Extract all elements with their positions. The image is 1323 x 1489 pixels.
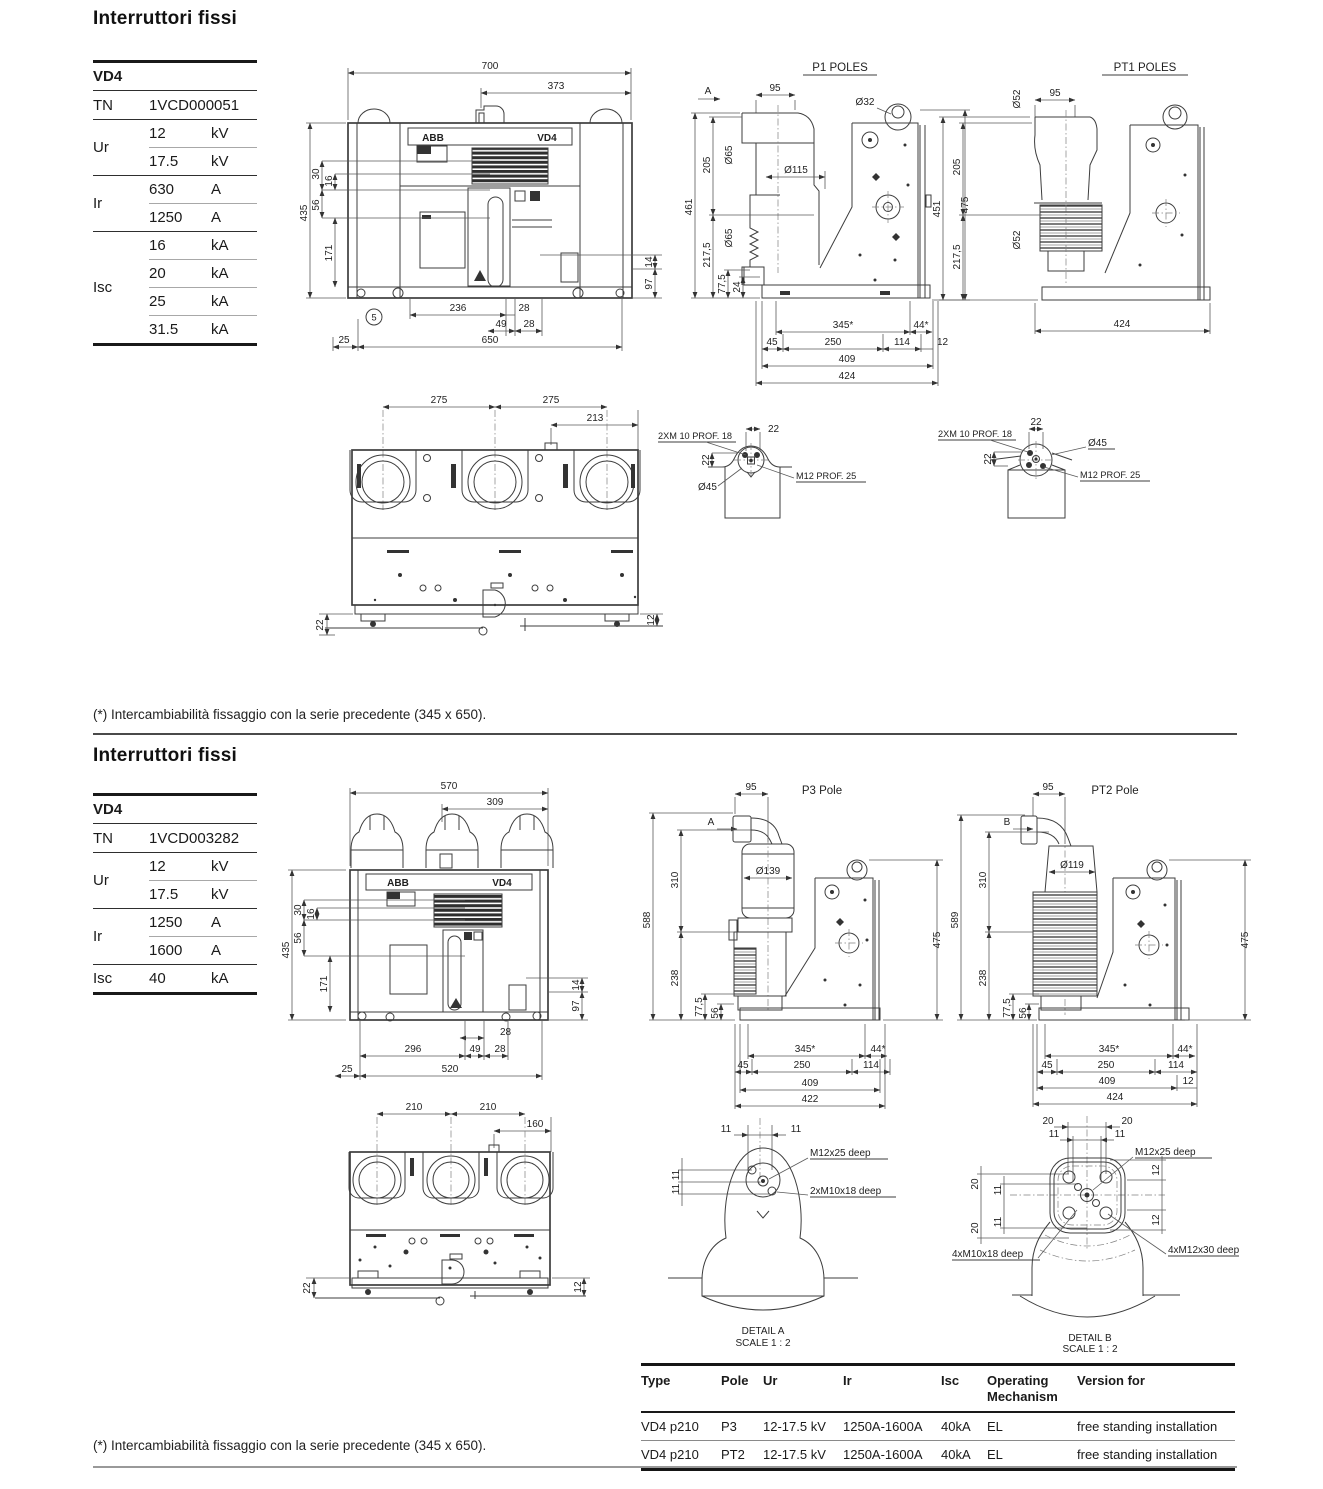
dim-label: 30: [293, 904, 304, 916]
dim-label: 345*: [1099, 1044, 1120, 1055]
dim-label: 77,5: [717, 274, 728, 294]
dim-label: Ø65: [724, 228, 735, 247]
dim-label: 217,5: [952, 244, 963, 269]
pole-dome: [426, 814, 478, 868]
table-header: Type: [641, 1366, 721, 1411]
pole-dome: [501, 814, 553, 868]
dim-label: 435: [299, 204, 310, 221]
dim-label: 95: [769, 83, 781, 94]
dim-label: 12: [646, 614, 657, 626]
dim-label: Ø45: [1088, 438, 1107, 449]
dim-label: 570: [441, 781, 458, 792]
dim-label: 424: [1107, 1092, 1124, 1103]
spec-unit: kV: [211, 852, 257, 880]
dim-label: 461: [684, 198, 695, 215]
spec-value: 1VCD000051: [149, 91, 257, 119]
table-cell: VD4 p210: [641, 1440, 721, 1468]
spec-unit: kV: [211, 147, 257, 175]
table-cell: 1250A-1600A: [843, 1411, 941, 1440]
dim-label: 11: [721, 1124, 732, 1135]
dim-label: 14: [571, 979, 582, 991]
dim-label: 11: [993, 1184, 1004, 1195]
dim-label: 44*: [913, 320, 928, 331]
dim-label: 250: [794, 1060, 811, 1071]
dim-label: Ø52: [1012, 230, 1023, 249]
spec-value: 12: [149, 119, 211, 147]
view-direction-label: A: [708, 817, 715, 828]
dim-label: 217,5: [702, 242, 713, 267]
spec-unit: A: [211, 175, 257, 203]
spec-value: 1600: [149, 936, 211, 964]
dim-label: 95: [1049, 88, 1061, 99]
brand-label: ABB: [422, 133, 444, 144]
dim-label: 44*: [1177, 1044, 1192, 1055]
dim-label: 451: [932, 200, 943, 217]
dim-label: 12: [1182, 1076, 1194, 1087]
view-direction-label: B: [1004, 817, 1011, 828]
table-cell: 12-17.5 kV: [763, 1440, 843, 1468]
thread-spec-label: 4xM12x30 deep: [1168, 1245, 1240, 1256]
dim-label: 30: [311, 168, 322, 180]
dim-label: 238: [670, 969, 681, 986]
table-header: Operating Mechanism: [987, 1366, 1077, 1411]
dim-label: Ø115: [784, 165, 808, 176]
spec-unit: kA: [211, 259, 257, 287]
bottom-view-drawing-1: 275 275 213 22 12: [305, 390, 670, 655]
spec-label: Isc: [93, 964, 149, 992]
dim-label: 12: [1151, 1214, 1162, 1226]
dim-label: 114: [894, 337, 910, 348]
pole-dome: [351, 814, 403, 868]
thread-spec-label: 2XM 10 PROF. 18: [658, 431, 732, 441]
footnote-2: (*) Intercambiabilità fissaggio con la s…: [93, 1438, 486, 1453]
dim-label: 345*: [833, 320, 854, 331]
table-cell: P3: [721, 1411, 763, 1440]
dim-label: 650: [482, 335, 499, 346]
dim-label: Ø65: [724, 145, 735, 164]
table-cell: free standing installation: [1077, 1411, 1235, 1440]
dim-label: 49: [469, 1044, 481, 1055]
spec-table-title: VD4: [93, 63, 257, 91]
dim-label: 310: [670, 871, 681, 888]
dim-label: 171: [324, 244, 335, 261]
dim-label: 409: [802, 1078, 819, 1089]
dim-label: 236: [450, 303, 467, 314]
dim-label: 435: [281, 941, 292, 958]
spec-value: 40: [149, 964, 211, 992]
p3-pole-drawing: P3 Pole 95 A Ø139 588 310 238 77,5 56 47…: [635, 780, 945, 1110]
dim-label: 409: [1099, 1076, 1116, 1087]
dim-label: 28: [518, 303, 530, 314]
dim-label: 296: [405, 1044, 422, 1055]
louver-grille: [434, 894, 502, 927]
pole-terminal-detail-right: 22 22 2XM 10 PROF. 18 Ø45 M12 PROF. 25: [930, 415, 1180, 525]
dim-label: 44*: [870, 1044, 885, 1055]
table-cell: 40kA: [941, 1440, 987, 1468]
spec-unit: kA: [211, 287, 257, 315]
dim-label: 22: [1030, 417, 1042, 428]
dim-label: Ø119: [1060, 860, 1084, 871]
spec-label: TN: [93, 91, 149, 119]
dim-label: 20: [1121, 1116, 1133, 1127]
table-cell: EL: [987, 1411, 1077, 1440]
detail-caption: DETAIL A: [742, 1326, 785, 1337]
view-title: PT1 POLES: [1114, 62, 1177, 74]
table-cell: 40kA: [941, 1411, 987, 1440]
spec-unit: A: [211, 908, 257, 936]
dim-label: 275: [543, 395, 560, 406]
spec-unit: A: [211, 936, 257, 964]
dim-label: 424: [1114, 319, 1131, 330]
dim-label: 11: [671, 1183, 682, 1194]
dim-label: 309: [487, 797, 504, 808]
dim-label: 114: [863, 1060, 879, 1071]
thread-spec-label: 2XM 10 PROF. 18: [938, 429, 1012, 439]
dim-label: 28: [523, 319, 535, 330]
dim-label: 45: [766, 337, 778, 348]
spec-label: Ir: [93, 908, 149, 964]
table-header: Isc: [941, 1366, 987, 1411]
dim-label: 20: [1042, 1116, 1054, 1127]
spec-label: Isc: [93, 231, 149, 343]
spec-label: TN: [93, 824, 149, 852]
dim-label: 210: [480, 1102, 497, 1113]
detail-caption: DETAIL B: [1068, 1333, 1112, 1344]
pole-fins: [1040, 205, 1102, 251]
dim-label: 213: [587, 413, 604, 424]
spec-value: 630: [149, 175, 211, 203]
spec-value: 17.5: [149, 147, 211, 175]
dim-label: 422: [802, 1094, 819, 1105]
dim-label: 475: [932, 931, 943, 948]
spec-value: 1250: [149, 203, 211, 231]
dim-label: 20: [970, 1178, 981, 1190]
spec-label: Ur: [93, 852, 149, 908]
view-direction-label: A: [705, 86, 712, 97]
dim-label: 475: [1240, 931, 1251, 948]
dim-label: Ø32: [856, 97, 875, 108]
dim-label: 45: [1041, 1060, 1053, 1071]
dim-label: 20: [970, 1222, 981, 1234]
dim-label: 77,5: [694, 997, 705, 1017]
thread-spec-label: 4xM10x18 deep: [952, 1249, 1024, 1260]
thread-spec-label: M12x25 deep: [810, 1148, 871, 1159]
dim-label: 22: [315, 619, 326, 631]
spec-unit: A: [211, 203, 257, 231]
dim-label: 24: [732, 281, 743, 293]
dim-label: 520: [442, 1064, 459, 1075]
dim-label: 424: [839, 371, 856, 382]
spec-value: 12: [149, 852, 211, 880]
detail-b-drawing: 20 20 11 11 20 11 20 11 12 12 M12x25 dee…: [950, 1110, 1240, 1355]
dim-label: Ø52: [1012, 89, 1023, 108]
section-divider: [93, 733, 1237, 735]
spec-value: 31.5: [149, 315, 211, 343]
thread-spec-label: M12x25 deep: [1135, 1147, 1196, 1158]
table-cell: EL: [987, 1440, 1077, 1468]
spec-unit: kA: [211, 964, 257, 992]
dim-label: 205: [702, 156, 713, 173]
dim-label: 28: [494, 1044, 506, 1055]
dim-label: 12: [1151, 1164, 1162, 1176]
dim-label: 345*: [795, 1044, 816, 1055]
view-title: PT2 Pole: [1091, 785, 1138, 797]
table-cell: VD4 p210: [641, 1411, 721, 1440]
spec-label: Ur: [93, 119, 149, 175]
thread-spec-label: M12 PROF. 25: [796, 471, 856, 481]
dim-label: 588: [642, 911, 653, 928]
table-header: Pole: [721, 1366, 763, 1411]
dim-label: 22: [302, 1282, 313, 1294]
dim-label: 16: [324, 175, 335, 187]
table-cell: 1250A-1600A: [843, 1440, 941, 1468]
spec-value: 20: [149, 259, 211, 287]
spec-table-2: VD4 TN 1VCD003282 Ur 12 kV 17.5 kV Ir 12…: [93, 793, 257, 995]
dim-label: 238: [978, 969, 989, 986]
dim-label: 22: [983, 453, 994, 465]
spec-value: 17.5: [149, 880, 211, 908]
dim-label: 22: [701, 454, 712, 466]
dim-label: 11: [791, 1124, 802, 1135]
dim-label: 28: [500, 1027, 512, 1038]
brand-label: ABB: [387, 878, 409, 889]
dim-label: 56: [293, 932, 304, 944]
dim-label: Ø139: [756, 866, 781, 877]
table-header: Version for: [1077, 1366, 1235, 1411]
table-cell: free standing installation: [1077, 1440, 1235, 1468]
dim-label: 56: [710, 1007, 721, 1019]
ratings-table: Type Pole Ur Ir Isc Operating Mechanism …: [641, 1363, 1235, 1471]
spec-label: Ir: [93, 175, 149, 231]
dim-label: 16: [306, 908, 317, 920]
dim-label: 49: [495, 319, 507, 330]
dim-label: 56: [1018, 1007, 1029, 1019]
footnote-1: (*) Intercambiabilità fissaggio con la s…: [93, 707, 486, 722]
section1-heading: Interruttori fissi: [93, 8, 237, 30]
dim-label: 11: [1115, 1129, 1126, 1140]
datasheet-page: Interruttori fissi VD4 TN 1VCD000051 Ur …: [0, 0, 1323, 1489]
bottom-view-drawing-2: 210 210 160 22 12: [290, 1100, 630, 1330]
view-title: P3 Pole: [802, 785, 842, 797]
dim-label: 275: [431, 395, 448, 406]
dim-label: 95: [1042, 782, 1054, 793]
front-view-drawing-1: 700 373 ABB VD4 435 30 16 56 171 14 97 2…: [300, 55, 680, 365]
thread-spec-label: M12 PROF. 25: [1080, 470, 1140, 480]
dim-label: 25: [338, 335, 350, 346]
spec-value: 1VCD003282: [149, 824, 257, 852]
dim-label: 210: [406, 1102, 423, 1113]
dim-label: 250: [825, 337, 842, 348]
dim-label: 205: [952, 158, 963, 175]
dim-label: 12: [573, 1281, 584, 1293]
table-header: Ur: [763, 1366, 843, 1411]
dim-label: 56: [311, 199, 322, 211]
dim-label: 310: [978, 871, 989, 888]
dim-label: Ø45: [698, 482, 717, 493]
spec-unit: kA: [211, 231, 257, 259]
thread-spec-label: 2xM10x18 deep: [810, 1186, 882, 1197]
pole-fins: [1033, 892, 1097, 996]
pole-terminal-detail-left: 22 22 2XM 10 PROF. 18 Ø45 M12 PROF. 25: [650, 415, 900, 525]
spec-unit: kV: [211, 880, 257, 908]
table-cell: PT2: [721, 1440, 763, 1468]
spec-value: 16: [149, 231, 211, 259]
dim-label: 160: [527, 1119, 544, 1130]
dim-label: 589: [950, 911, 961, 928]
spec-table-title: VD4: [93, 796, 257, 824]
dim-label: 77,5: [1002, 998, 1013, 1018]
model-label: VD4: [492, 878, 512, 889]
spec-unit: kV: [211, 119, 257, 147]
section2-heading: Interruttori fissi: [93, 745, 237, 767]
spec-table-1: VD4 TN 1VCD000051 Ur 12 kV 17.5 kV Ir 63…: [93, 60, 257, 346]
spec-value: 1250: [149, 908, 211, 936]
model-label: VD4: [537, 133, 557, 144]
dim-label: 22: [768, 424, 780, 435]
spec-value: 25: [149, 287, 211, 315]
footer-rule: [93, 1466, 1237, 1468]
dim-label: 171: [319, 975, 330, 992]
dim-label: 11: [993, 1216, 1004, 1227]
detail-a-drawing: 11 11 11 11 M12x25 deep 2xM10x18 deep DE…: [630, 1110, 910, 1350]
scale-caption: SCALE 1 : 2: [735, 1338, 790, 1349]
dim-label: 45: [737, 1060, 749, 1071]
dim-label: 11: [1049, 1129, 1060, 1140]
dim-label: 373: [548, 81, 565, 92]
louver-grille: [472, 148, 548, 184]
view-title: P1 POLES: [812, 62, 868, 74]
pole-fins: [734, 948, 756, 994]
pt1-poles-drawing: PT1 POLES Ø52 95 451 205 Ø52 217,5 424: [930, 55, 1275, 355]
table-header: Ir: [843, 1366, 941, 1411]
dim-label: 25: [341, 1064, 353, 1075]
dim-label: 114: [1168, 1060, 1184, 1071]
dim-label: 409: [839, 354, 856, 365]
dim-label: 14: [644, 256, 655, 268]
spec-unit: kA: [211, 315, 257, 343]
pt2-pole-drawing: PT2 Pole 95 B Ø119 589 310 238 77,5 56 4…: [945, 780, 1255, 1110]
scale-caption: SCALE 1 : 2: [1062, 1344, 1117, 1355]
dim-label: 700: [482, 61, 499, 72]
dim-label: 97: [644, 278, 655, 290]
callout-number: 5: [371, 313, 376, 323]
front-view-drawing-2: 570 309 ABB VD4 435 30 16 56 171 14 97: [280, 780, 620, 1100]
table-cell: 12-17.5 kV: [763, 1411, 843, 1440]
dim-label: 11: [671, 1169, 682, 1180]
dim-label: 250: [1098, 1060, 1115, 1071]
dim-label: 97: [571, 1000, 582, 1012]
dim-label: 95: [745, 782, 757, 793]
